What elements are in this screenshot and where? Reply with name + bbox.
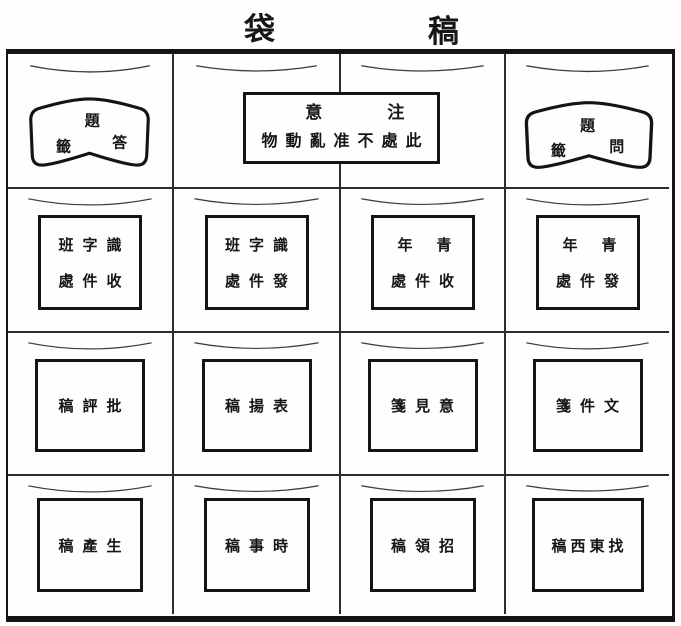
pocket-opening-arc-icon	[186, 482, 327, 499]
tag-char-right: 問	[609, 136, 624, 157]
bag-grid: 題 籤 答 題	[8, 54, 669, 614]
pocket-label-box: 年青 處件收	[371, 215, 475, 310]
pocket-label-line: 班字識	[41, 234, 139, 255]
pocket-cell: 箋件文	[506, 333, 669, 474]
notice-line1: 意 注	[246, 98, 437, 124]
pocket-label-box: 稿西東找	[532, 498, 644, 592]
pocket-label-box: 稿揚表	[202, 359, 312, 452]
pocket-cell: 稿揚表	[174, 333, 339, 474]
pocket-label-box: 班字識 處件收	[38, 215, 142, 310]
pocket-label-line: 處件發	[208, 270, 306, 291]
pocket-cell: 稿產生	[8, 476, 172, 614]
pocket-cell: 稿事時	[174, 476, 339, 614]
pocket-opening-arc-icon	[518, 195, 657, 212]
tag-shape-icon	[21, 90, 158, 174]
notice-char-yi: 意	[305, 98, 322, 123]
tag-char-left: 籤	[551, 139, 566, 160]
pocket-label-line: 稿評批	[49, 395, 130, 416]
bag-frame: 題 籤 答 題	[6, 49, 675, 622]
pocket-label-box: 稿評批	[35, 359, 145, 452]
pocket-label-line: 稿揚表	[216, 395, 297, 416]
pocket-label-line: 班字識	[208, 234, 306, 255]
notice-box: 意 注 物動亂准不處此	[243, 92, 440, 164]
pocket-label-box: 班字識 處件發	[205, 215, 309, 310]
pocket-cell: 題 籤 答	[8, 54, 172, 187]
pocket-cell: 箋見意	[341, 333, 504, 474]
pocket-label-line: 稿領招	[382, 535, 463, 556]
pocket-label-line: 稿事時	[216, 535, 297, 556]
tag-char-left: 籤	[56, 136, 71, 157]
pocket-label-line: 年青	[374, 234, 472, 255]
pocket-opening-arc-icon	[20, 339, 160, 356]
pocket-opening-arc-icon	[22, 62, 158, 79]
title-char-right: 稿	[428, 6, 459, 51]
pocket-label-box: 箋件文	[533, 359, 643, 452]
pocket-cell: 年青 處件發	[506, 189, 669, 331]
notice-char-zhu: 注	[387, 98, 404, 123]
pocket-label-line: 箋見意	[382, 395, 463, 416]
pocket-label-line: 箋件文	[547, 395, 628, 416]
pocket-opening-arc-icon	[20, 482, 160, 499]
pocket-opening-arc-icon	[353, 195, 492, 212]
pocket-label-line: 稿產生	[49, 535, 130, 556]
pocket-label-line: 處件收	[374, 270, 472, 291]
notice-line2: 物動亂准不處此	[246, 127, 437, 151]
pocket-cell: 班字識 處件發	[174, 189, 339, 331]
tag-char-right: 答	[112, 132, 127, 153]
pocket-label-box: 箋見意	[368, 359, 478, 452]
pocket-cell: 稿評批	[8, 333, 172, 474]
pocket-opening-arc-icon	[188, 62, 325, 79]
pocket-cell: 題 籤 問	[506, 54, 669, 187]
pocket-label-line: 年青	[539, 234, 637, 255]
pocket-opening-arc-icon	[353, 339, 492, 356]
pocket-opening-arc-icon	[518, 482, 657, 499]
tag-char-top: 題	[580, 115, 595, 136]
question-tag: 題 籤 問	[516, 94, 662, 176]
title-char-left: 袋	[244, 4, 275, 49]
answer-tag: 題 籤 答	[21, 90, 158, 174]
pocket-label-box: 年青 處件發	[536, 215, 640, 310]
manuscript-bag-diagram: 袋 稿 題 籤 答	[0, 0, 681, 626]
pocket-cell: 稿西東找	[506, 476, 669, 614]
pocket-opening-arc-icon	[518, 339, 657, 356]
pocket-opening-arc-icon	[518, 62, 657, 79]
pocket-label-line: 處件發	[539, 270, 637, 291]
pocket-opening-arc-icon	[186, 339, 327, 356]
pocket-label-line: 處件收	[41, 270, 139, 291]
pocket-label-box: 稿事時	[204, 498, 310, 592]
pocket-opening-arc-icon	[353, 482, 492, 499]
tag-char-top: 題	[85, 110, 100, 131]
pocket-label-line: 稿西東找	[547, 535, 627, 556]
pocket-cell: 年青 處件收	[341, 189, 504, 331]
pocket-cell: 班字識 處件收	[8, 189, 172, 331]
pocket-opening-arc-icon	[186, 195, 327, 212]
pocket-label-box: 稿領招	[370, 498, 476, 592]
pocket-label-box: 稿產生	[37, 498, 143, 592]
pocket-opening-arc-icon	[353, 62, 492, 79]
pocket-cell: 稿領招	[341, 476, 504, 614]
pocket-opening-arc-icon	[20, 195, 160, 212]
